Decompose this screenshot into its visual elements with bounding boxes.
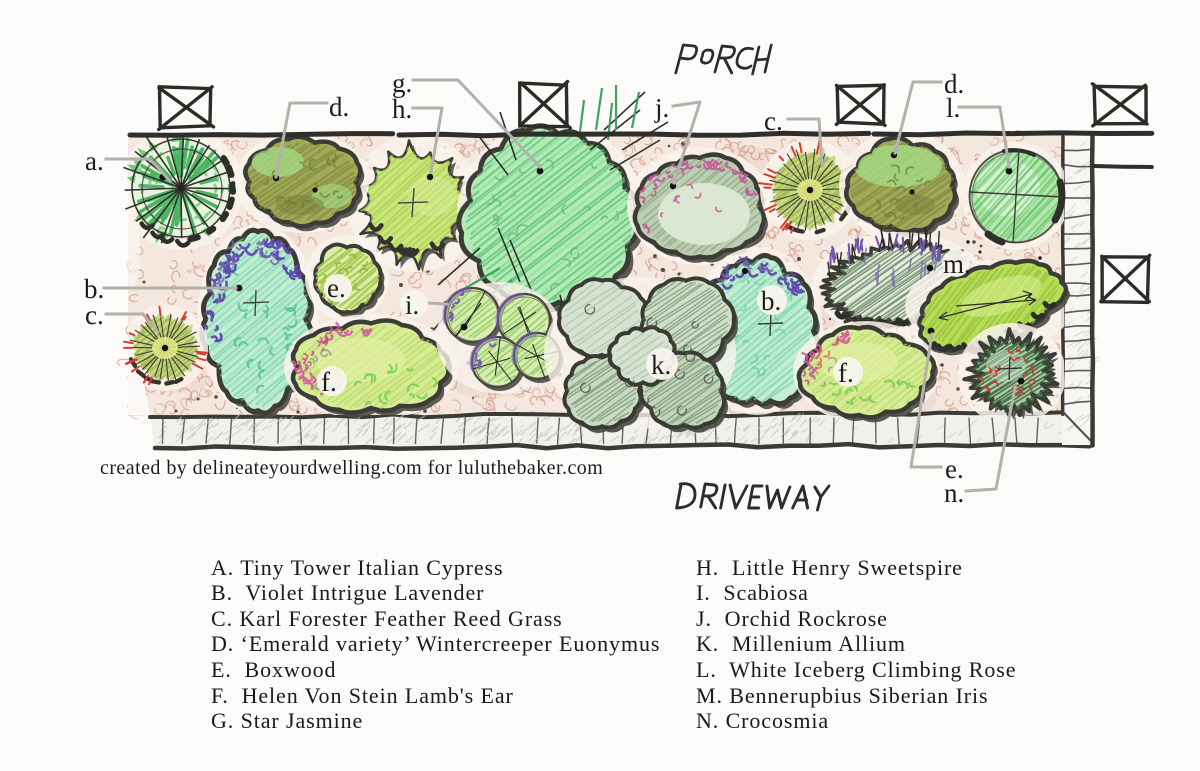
svg-text:F. Helen Von Stein Lamb's Ear: F. Helen Von Stein Lamb's Ear	[211, 683, 514, 708]
svg-text:c.: c.	[85, 300, 104, 330]
svg-text:c.: c.	[764, 106, 783, 136]
svg-text:D. ‘Emerald variety’ Wintercre: D. ‘Emerald variety’ Wintercreeper Euony…	[211, 631, 660, 656]
svg-text:C. Karl Forester Feather Reed: C. Karl Forester Feather Reed Grass	[211, 606, 563, 631]
svg-text:A. Tiny Tower Italian Cypress: A. Tiny Tower Italian Cypress	[211, 555, 503, 580]
svg-text:j.: j.	[654, 93, 669, 123]
svg-text:h.: h.	[392, 94, 412, 124]
svg-text:e.: e.	[327, 273, 346, 303]
svg-text:i.: i.	[405, 290, 419, 320]
svg-text:b.: b.	[761, 286, 781, 316]
svg-text:k.: k.	[651, 350, 671, 380]
svg-text:l.: l.	[946, 93, 960, 123]
svg-text:J. Orchid Rockrose: J. Orchid Rockrose	[696, 606, 888, 631]
svg-text:L. White Iceberg Climbing Ros: L. White Iceberg Climbing Rose	[696, 657, 1016, 682]
svg-text:H. Little Henry Sweetspire: H. Little Henry Sweetspire	[696, 555, 963, 580]
svg-text:I. Scabiosa: I. Scabiosa	[696, 580, 809, 605]
svg-text:f.: f.	[321, 367, 337, 397]
svg-text:created by delineateyourdwelli: created by delineateyourdwelling.com for…	[100, 457, 603, 479]
svg-text:M. Bennerupbius Siberian Iris: M. Bennerupbius Siberian Iris	[696, 683, 989, 708]
svg-text:N. Crocosmia: N. Crocosmia	[696, 708, 829, 733]
svg-text:f.: f.	[838, 358, 854, 388]
svg-text:B. Violet Intrigue Lavender: B. Violet Intrigue Lavender	[211, 580, 484, 605]
svg-text:d.: d.	[329, 92, 349, 122]
svg-text:G. Star Jasmine: G. Star Jasmine	[211, 708, 363, 733]
svg-text:m.: m.	[943, 249, 971, 279]
svg-text:E. Boxwood: E. Boxwood	[211, 657, 336, 682]
svg-text:a.: a.	[85, 146, 104, 176]
svg-text:K. Millenium Allium: K. Millenium Allium	[696, 631, 906, 656]
svg-text:n.: n.	[944, 478, 964, 508]
